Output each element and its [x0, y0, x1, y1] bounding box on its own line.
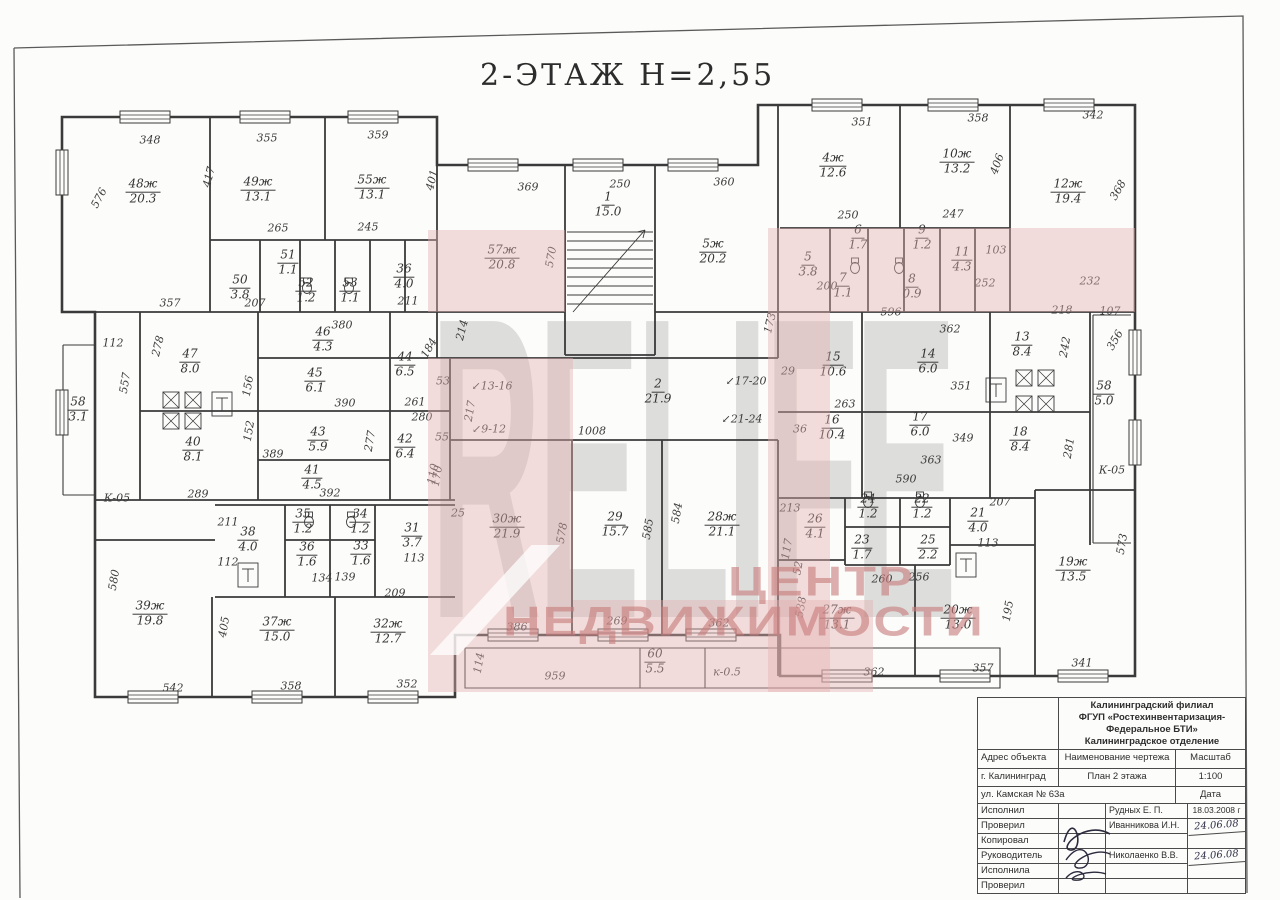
room-area: 8.4	[1009, 441, 1030, 455]
room-label: 40 8.1	[182, 436, 203, 465]
room-number: 58	[1093, 380, 1114, 395]
room-number: 8	[905, 273, 919, 288]
room-label: 5 3.8	[798, 251, 817, 280]
dimension-label: 211	[218, 516, 239, 529]
room-label: 60 5.5	[644, 648, 665, 677]
role-label: Копировал	[978, 834, 1059, 849]
org-line: Калининградское отделение	[1059, 736, 1245, 748]
room-label: 11 4.3	[951, 246, 972, 275]
dimension-label: 207	[245, 297, 266, 310]
room-label: 58 3.1	[67, 396, 88, 425]
dimension-label: 369	[518, 181, 539, 194]
role-label: Проверил	[978, 819, 1059, 834]
room-area: 20.8	[485, 259, 520, 273]
room-number: 4ж	[819, 152, 846, 167]
room-area: 4.0	[237, 541, 258, 555]
room-area: 8.0	[179, 363, 200, 377]
room-area: 12.7	[371, 633, 406, 647]
room-area: 6.5	[394, 366, 415, 380]
room-label: 29 15.7	[602, 511, 629, 540]
dimension-label: 357	[973, 662, 994, 675]
room-number: 28ж	[705, 511, 740, 526]
address-header: Адрес объекта	[978, 750, 1059, 769]
dimension-label: 200	[817, 280, 838, 293]
dimension-label: 390	[335, 397, 356, 410]
signature-scribbles	[1056, 804, 1116, 884]
dimension-label: 211	[398, 295, 419, 308]
window	[573, 159, 623, 171]
room-number: 43	[307, 426, 328, 441]
room-area: 8.1	[182, 451, 203, 465]
room-number: 5ж	[699, 238, 726, 253]
room-label: 24 1.2	[857, 493, 878, 522]
room-area: 5.5	[644, 663, 665, 677]
room-area: 20.2	[699, 253, 726, 267]
room-area: 19.4	[1051, 193, 1086, 207]
room-number: 16	[821, 414, 842, 429]
room-label: 55ж 13.1	[355, 174, 390, 203]
room-number: 6	[851, 224, 865, 239]
role-label: Исполнил	[978, 804, 1059, 819]
dimension-label: 360	[714, 176, 735, 189]
room-number: 42	[394, 433, 415, 448]
dimension-label: 29	[781, 365, 795, 378]
dimension-label: 139	[335, 571, 356, 584]
room-area: 21.9	[490, 528, 525, 542]
window	[120, 111, 170, 123]
stove-icon	[1038, 396, 1054, 412]
room-number: 34	[349, 508, 370, 523]
room-area: 6.1	[304, 382, 325, 396]
room-label: 17 6.0	[909, 411, 930, 440]
room-label: 32ж 12.7	[371, 618, 406, 647]
room-label: 52 1.2	[295, 277, 316, 306]
room-number: 52	[295, 277, 316, 292]
room-number: 24	[857, 493, 878, 508]
room-number: 33	[350, 540, 371, 555]
room-area: 1.7	[848, 239, 867, 253]
room-number: 36	[296, 541, 317, 556]
dimension-label: 134	[312, 572, 333, 585]
room-number: 26	[804, 513, 825, 528]
room-label: 22 1.2	[911, 493, 932, 522]
room-label: 33 1.6	[350, 540, 371, 569]
room-label: 4ж 12.6	[819, 152, 846, 181]
dimension-label: 112	[103, 337, 124, 350]
toilet-icon	[895, 258, 904, 274]
room-area: 12.6	[819, 167, 846, 181]
room-number: 38	[237, 526, 258, 541]
dimension-label: ↙9-12	[472, 423, 506, 436]
room-area: 1.6	[296, 556, 317, 570]
room-label: 2 21.9	[645, 378, 672, 407]
stove-icon	[185, 413, 201, 429]
dimension-label: 341	[1072, 657, 1093, 670]
room-label: 15 10.6	[820, 351, 847, 380]
room-area: 6.0	[909, 426, 930, 440]
room-label: 12ж 19.4	[1051, 178, 1086, 207]
stove-icon	[1016, 370, 1032, 386]
room-area: 20.3	[126, 193, 161, 207]
room-area: 0.9	[902, 288, 921, 302]
room-number: 17	[909, 411, 930, 426]
dimension-label: 289	[188, 488, 209, 501]
room-number: 39ж	[133, 600, 168, 615]
room-area: 19.8	[133, 615, 168, 629]
room-label: 21 4.0	[967, 507, 988, 536]
dimension-label: 362	[864, 666, 885, 679]
room-area: 1.6	[350, 555, 371, 569]
room-label: 26 4.1	[804, 513, 825, 542]
room-number: 19ж	[1056, 556, 1091, 571]
dimension-label: 265	[268, 222, 289, 235]
org-line: Калининградский филиал	[1059, 700, 1245, 712]
dimension-label: 280	[412, 411, 433, 424]
window	[1129, 420, 1141, 465]
room-number: 10ж	[940, 148, 975, 163]
stove-icon	[163, 413, 179, 429]
room-area: 13.1	[241, 191, 276, 205]
boiler-icon	[986, 378, 1006, 402]
dimension-label: К-05	[1099, 464, 1125, 477]
person-name	[1106, 834, 1188, 849]
room-number: 48ж	[126, 178, 161, 193]
room-area: 1.1	[277, 264, 298, 278]
dimension-label: 358	[968, 112, 989, 125]
room-area: 6.0	[917, 363, 938, 377]
window	[348, 111, 398, 123]
dimension-label: 359	[368, 129, 389, 142]
dimension-label: 107	[1100, 305, 1121, 318]
room-label: 34 1.2	[349, 508, 370, 537]
dimension-label: 959	[545, 670, 566, 683]
room-number: 45	[304, 367, 325, 382]
room-label: 8 0.9	[902, 273, 921, 302]
room-number: 29	[604, 511, 625, 526]
drawing-header: Наименование чертежа	[1059, 750, 1176, 769]
role-label: Руководитель	[978, 849, 1059, 864]
room-label: 10ж 13.2	[940, 148, 975, 177]
room-number: 14	[917, 348, 938, 363]
role-label: Исполнила	[978, 864, 1059, 879]
dimension-label: ↙13-16	[472, 380, 513, 393]
dimension-label: 355	[257, 132, 278, 145]
person-name	[1106, 864, 1188, 879]
dimension-label: 349	[953, 432, 974, 445]
room-label: 35 1.2	[292, 508, 313, 537]
boiler-icon	[956, 553, 976, 577]
room-number: 25	[917, 534, 938, 549]
dimension-label: 357	[160, 297, 181, 310]
window	[1058, 670, 1108, 682]
dimension-label: ↙17-20	[726, 375, 767, 388]
window	[240, 111, 290, 123]
room-label: 25 2.2	[917, 534, 938, 563]
room-number: 9	[915, 224, 929, 239]
dimension-label: 209	[385, 587, 406, 600]
room-area: 4.0	[967, 522, 988, 536]
boiler-icon	[238, 563, 258, 587]
dimension-label: 207	[990, 496, 1011, 509]
room-number: 44	[394, 351, 415, 366]
dimension-label: 342	[1083, 109, 1104, 122]
room-label: 16 10.4	[819, 414, 846, 443]
room-label: 36 1.6	[296, 541, 317, 570]
room-label: 46 4.3	[312, 326, 333, 355]
room-label: 51 1.1	[277, 249, 298, 278]
room-area: 13.1	[355, 189, 390, 203]
dimension-label: 36	[793, 423, 807, 436]
dimension-label: 213	[780, 502, 801, 515]
room-area: 13.2	[940, 163, 975, 177]
room-area: 1.2	[349, 523, 370, 537]
room-number: 58	[67, 396, 88, 411]
room-area: 3.8	[798, 266, 817, 280]
room-number: 5	[801, 251, 815, 266]
room-number: 53	[339, 277, 360, 292]
room-area: 10.6	[820, 366, 847, 380]
dimension-label: 218	[1052, 304, 1073, 317]
room-label: 45 6.1	[304, 367, 325, 396]
dimension-label: 113	[978, 537, 999, 550]
scanned-floor-plan-sheet: RELIFE	[0, 0, 1280, 900]
room-number: 32ж	[371, 618, 406, 633]
room-number: 55ж	[355, 174, 390, 189]
room-area: 5.9	[307, 441, 328, 455]
room-label: 1 15.0	[595, 191, 622, 220]
page-title: 2-ЭТАЖ Н=2,55	[480, 58, 775, 93]
stove-icon	[185, 392, 201, 408]
room-label: 38 4.0	[237, 526, 258, 555]
stove-icon	[163, 392, 179, 408]
room-label: 39ж 19.8	[133, 600, 168, 629]
room-area: 4.3	[951, 261, 972, 275]
dimension-label: 247	[943, 208, 964, 221]
window	[56, 150, 68, 195]
room-area: 4.3	[312, 341, 333, 355]
room-label: 48ж 20.3	[126, 178, 161, 207]
window	[468, 159, 518, 171]
room-area: 3.1	[67, 411, 88, 425]
room-label: 28ж 21.1	[705, 511, 740, 540]
room-number: 46	[312, 326, 333, 341]
room-number: 35	[292, 508, 313, 523]
room-label: 53 1.1	[339, 277, 360, 306]
title-block-headers-row: Адрес объекта Наименование чертежа Масшт…	[978, 750, 1245, 769]
dimension-label: К-05	[104, 492, 130, 505]
room-area: 8.4	[1011, 346, 1032, 360]
dimension-label: 250	[838, 209, 859, 222]
window	[668, 159, 718, 171]
room-area: 15.7	[602, 526, 629, 540]
room-number: 18	[1009, 426, 1030, 441]
room-area: 1.2	[857, 508, 878, 522]
room-number: 51	[277, 249, 298, 264]
room-number: 12ж	[1051, 178, 1086, 193]
room-area: 5.0	[1093, 395, 1114, 409]
dimension-label: 392	[320, 487, 341, 500]
dimension-label: 53	[436, 375, 450, 388]
room-label: 43 5.9	[307, 426, 328, 455]
room-number: 40	[182, 436, 203, 451]
room-number: 30ж	[490, 513, 525, 528]
dimension-label: 363	[921, 454, 942, 467]
room-label: 30ж 21.9	[490, 513, 525, 542]
dimension-label: 103	[986, 244, 1007, 257]
room-label: 13 8.4	[1011, 331, 1032, 360]
window	[928, 99, 978, 111]
room-number: 37ж	[260, 616, 295, 631]
room-area: 3.7	[401, 537, 422, 551]
org-line: ФГУП «Ростехинвентаризация-	[1059, 712, 1245, 724]
staircase	[567, 230, 653, 312]
room-number: 36	[393, 263, 414, 278]
dimension-label: 351	[852, 116, 873, 129]
room-number: 60	[644, 648, 665, 663]
room-label: 14 6.0	[917, 348, 938, 377]
room-number: 13	[1011, 331, 1032, 346]
person-name: Николаенко В.В.	[1106, 849, 1188, 864]
title-block: Калининградский филиал ФГУП «Ростехинвен…	[977, 697, 1246, 894]
room-label: 57ж 20.8	[485, 244, 520, 273]
room-label: 19ж 13.5	[1056, 556, 1091, 585]
street-value: ул. Камская № 63а	[978, 787, 1176, 804]
person-name	[1106, 879, 1188, 894]
date-value	[1188, 879, 1245, 894]
room-label: 18 8.4	[1009, 426, 1030, 455]
room-area: 13.5	[1056, 571, 1091, 585]
room-area: 15.0	[595, 206, 622, 220]
dimension-label: 362	[940, 323, 961, 336]
room-number: 41	[301, 464, 322, 479]
room-area: 4.0	[393, 278, 414, 292]
room-label: 58 5.0	[1093, 380, 1114, 409]
scale-value: 1:100	[1176, 769, 1245, 787]
window	[812, 99, 862, 111]
room-number: 57ж	[485, 244, 520, 259]
room-label: 9 1.2	[912, 224, 931, 253]
dimension-label: 261	[405, 396, 426, 409]
stove-icon	[1038, 370, 1054, 386]
room-area: 1.1	[339, 292, 360, 306]
dimension-label: 348	[140, 134, 161, 147]
dimension-label: 389	[263, 448, 284, 461]
dimension-label: 1008	[578, 425, 606, 438]
room-label: 5ж 20.2	[699, 238, 726, 267]
room-number: 15	[822, 351, 843, 366]
dimension-label: 351	[951, 380, 972, 393]
room-number: 22	[911, 493, 932, 508]
room-area: 21.1	[705, 526, 740, 540]
room-label: 31 3.7	[401, 522, 422, 551]
room-area: 15.0	[260, 631, 295, 645]
dimension-label: 590	[896, 473, 917, 486]
room-area: 4.1	[804, 528, 825, 542]
room-area: 1.2	[911, 508, 932, 522]
scale-header: Масштаб	[1176, 750, 1245, 769]
window	[368, 691, 418, 703]
dimension-label: 358	[281, 680, 302, 693]
room-number: 7	[836, 272, 850, 287]
dimension-label: 112	[218, 556, 239, 569]
title-block-values-row: г. Калининград План 2 этажа 1:100	[978, 769, 1245, 787]
window	[1129, 330, 1141, 375]
room-number: 2	[651, 378, 665, 393]
room-number: 11	[951, 246, 972, 261]
room-area: 6.4	[394, 448, 415, 462]
room-label: 49ж 13.1	[241, 176, 276, 205]
room-number: 23	[851, 534, 872, 549]
room-area: 1.2	[295, 292, 316, 306]
dimension-label: 55	[435, 431, 449, 444]
person-name: Рудных Е. П.	[1106, 804, 1188, 819]
room-area: 1.2	[912, 239, 931, 253]
stove-icon	[1016, 396, 1032, 412]
date-value	[1188, 864, 1245, 879]
room-area: 1.2	[292, 523, 313, 537]
room-label: 6 1.7	[848, 224, 867, 253]
org-line: Федеральное БТИ»	[1059, 724, 1245, 736]
room-area: 21.9	[645, 393, 672, 407]
drawing-name-value: План 2 этажа	[1059, 769, 1176, 787]
dimension-label: 250	[610, 178, 631, 191]
window	[252, 691, 302, 703]
dimension-label: 380	[332, 319, 353, 332]
dimension-label: 542	[163, 682, 184, 695]
dimension-label: 596	[881, 306, 902, 319]
dimension-label: к-0.5	[713, 666, 741, 679]
room-number: 47	[179, 348, 200, 363]
room-label: 47 8.0	[179, 348, 200, 377]
dimension-label: 113	[404, 552, 425, 565]
title-block-org-empty-cell	[978, 698, 1059, 749]
dimension-label: 25	[451, 507, 465, 520]
title-block-street-row: ул. Камская № 63а Дата	[978, 787, 1245, 804]
room-area: 2.2	[917, 549, 938, 563]
dimension-label: ↙21-24	[722, 413, 763, 426]
room-area: 10.4	[819, 429, 846, 443]
role-label: Проверил	[978, 879, 1059, 894]
room-number: 49ж	[241, 176, 276, 191]
window	[56, 390, 68, 435]
watermark-nedvizhimosti: НЕДВИЖИМОСТИ	[503, 598, 985, 646]
room-number: 21	[967, 507, 988, 522]
city-value: г. Калининград	[978, 769, 1059, 787]
room-label: 37ж 15.0	[260, 616, 295, 645]
boiler-icon	[212, 392, 232, 416]
room-label: 36 4.0	[393, 263, 414, 292]
date-header: Дата	[1176, 787, 1245, 804]
room-label: 42 6.4	[394, 433, 415, 462]
dimension-label: 352	[397, 678, 418, 691]
room-label: 44 6.5	[394, 351, 415, 380]
dimension-label: 263	[835, 398, 856, 411]
room-number: 31	[401, 522, 422, 537]
room-number: 1	[601, 191, 615, 206]
dimension-label: 245	[358, 221, 379, 234]
person-name: Иванникова И.Н.	[1106, 819, 1188, 834]
room-number: 50	[229, 274, 250, 289]
dimension-label: 232	[1080, 275, 1101, 288]
dimension-label: 252	[975, 277, 996, 290]
title-block-org-name: Калининградский филиал ФГУП «Ростехинвен…	[1059, 698, 1245, 749]
title-block-org: Калининградский филиал ФГУП «Ростехинвен…	[978, 698, 1245, 750]
